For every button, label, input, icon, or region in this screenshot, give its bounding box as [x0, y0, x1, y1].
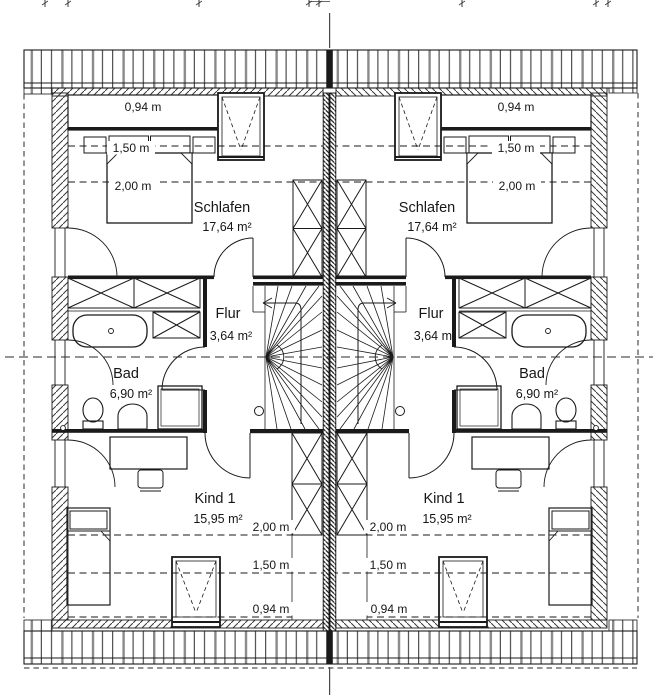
room-area-flur-left: 3,64 m² — [210, 329, 252, 343]
unit-left-geometry — [52, 88, 323, 628]
height-label-150-bottom-left: 1,50 m — [253, 558, 290, 572]
room-label-flur-left: Flur — [216, 306, 241, 322]
height-label-150-top-left: 1,50 m — [113, 141, 150, 155]
room-area-bad-left: 6,90 m² — [110, 387, 152, 401]
height-label-094-top-right: 0,94 m — [498, 100, 535, 114]
height-label-094-top-left: 0,94 m — [125, 100, 162, 114]
room-label-schlafen-right: Schlafen — [399, 200, 455, 216]
floor-plan-page: Schlafen 17,64 m² Flur 3,64 m² Bad 6,90 … — [0, 0, 658, 698]
room-area-bad-right: 6,90 m² — [516, 387, 558, 401]
height-label-150-bottom-right: 1,50 m — [370, 558, 407, 572]
room-label-schlafen-left: Schlafen — [194, 200, 250, 216]
height-label-200-top-left: 2,00 m — [115, 179, 152, 193]
room-area-kind-right: 15,95 m² — [422, 512, 471, 526]
dimension-ticks-top — [42, 0, 611, 7]
floor-plan-drawing: Schlafen 17,64 m² Flur 3,64 m² Bad 6,90 … — [0, 0, 658, 698]
unit-right-geometry — [336, 88, 607, 628]
height-label-200-top-right: 2,00 m — [499, 179, 536, 193]
room-label-bad-left: Bad — [113, 366, 139, 382]
height-label-200-bottom-left: 2,00 m — [253, 520, 290, 534]
room-area-schlafen-right: 17,64 m² — [407, 220, 456, 234]
room-label-bad-right: Bad — [519, 366, 545, 382]
room-label-flur-right: Flur — [419, 306, 444, 322]
room-area-kind-left: 15,95 m² — [193, 512, 242, 526]
height-label-094-bottom-right: 0,94 m — [371, 602, 408, 616]
height-label-200-bottom-right: 2,00 m — [370, 520, 407, 534]
height-label-094-bottom-left: 0,94 m — [253, 602, 290, 616]
room-label-kind-left: Kind 1 — [194, 491, 235, 507]
room-label-kind-right: Kind 1 — [423, 491, 464, 507]
height-label-150-top-right: 1,50 m — [498, 141, 535, 155]
room-area-schlafen-left: 17,64 m² — [202, 220, 251, 234]
room-area-flur-right: 3,64 m² — [414, 329, 456, 343]
